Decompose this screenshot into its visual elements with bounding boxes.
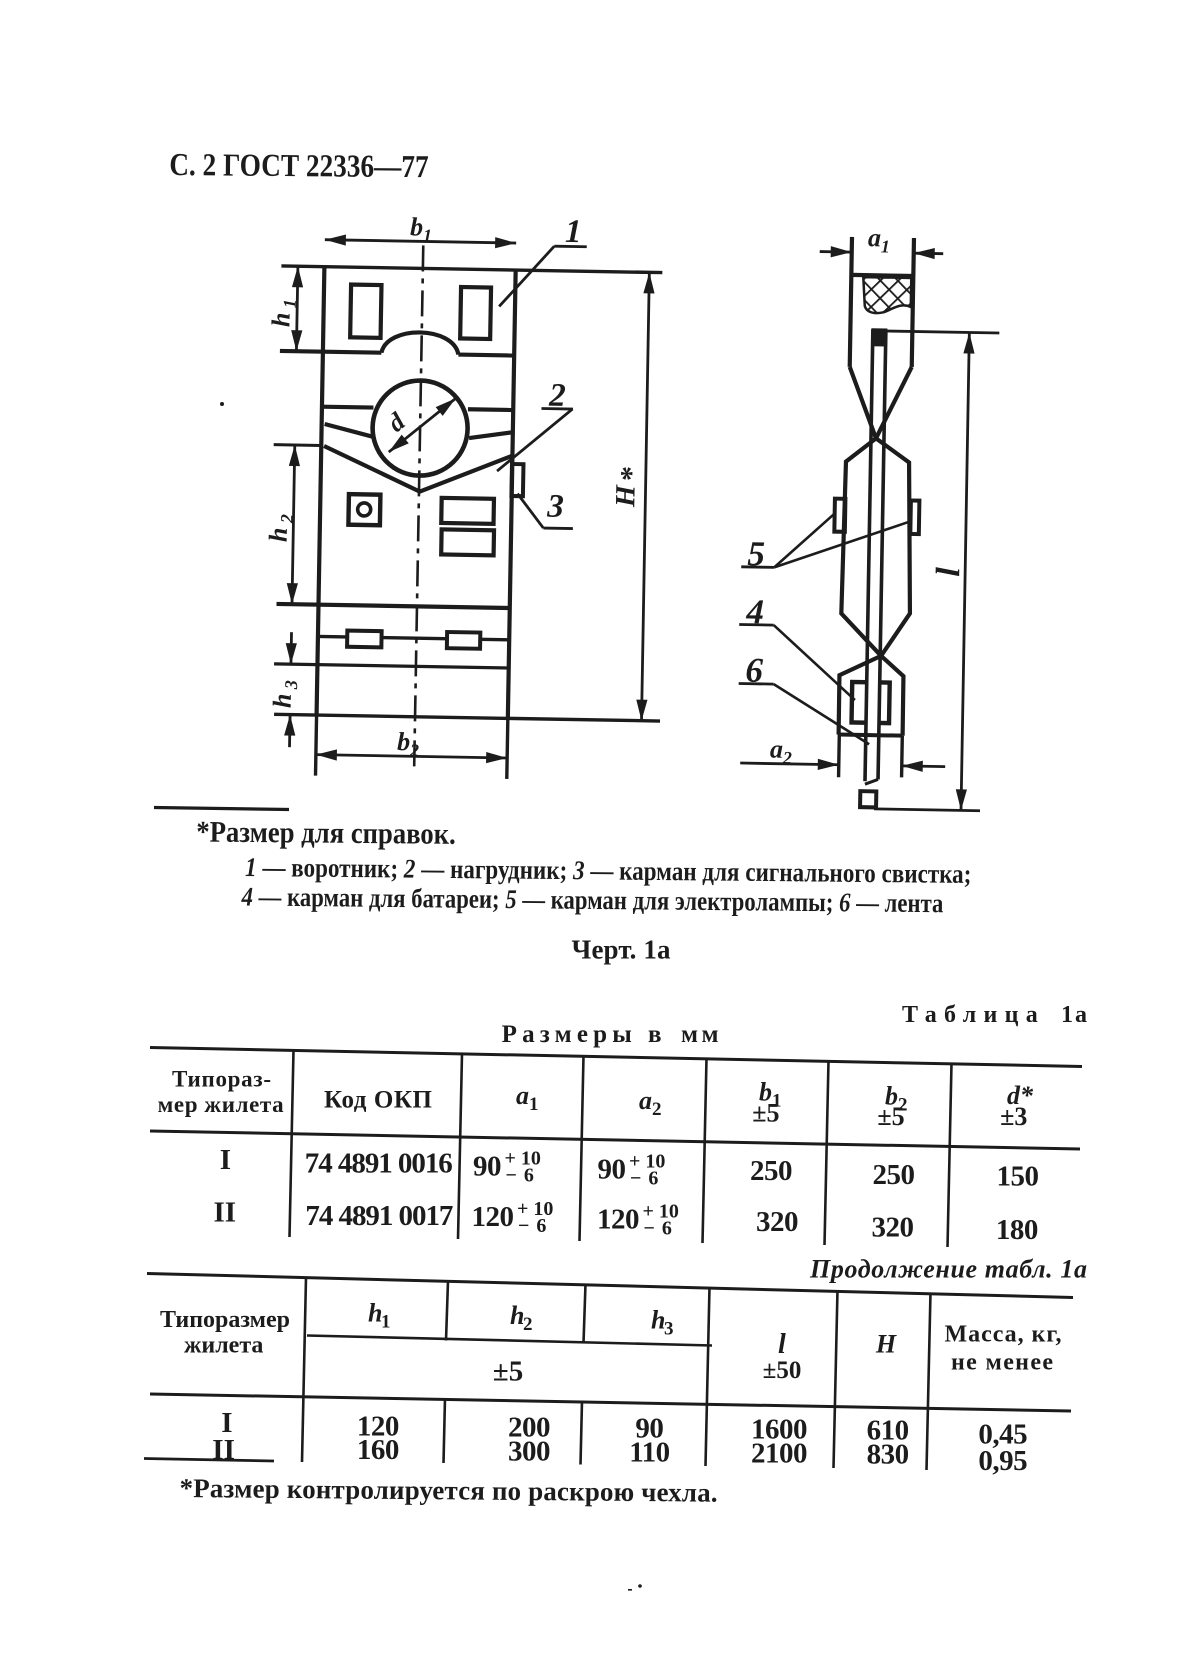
svg-text:*Размер контролируется по раск: *Размер контролируется по раскрою чехла.: [179, 1473, 717, 1508]
svg-text:±3: ±3: [1000, 1102, 1027, 1131]
svg-text:I: I: [220, 1144, 231, 1176]
svg-text:1: 1: [381, 1312, 391, 1333]
svg-text:в: в: [648, 1021, 662, 1048]
svg-text:2: 2: [782, 748, 792, 768]
svg-text:Таблица: Таблица: [902, 1002, 1045, 1028]
svg-text:Продолжение табл. 1а: Продолжение табл. 1а: [809, 1255, 1087, 1284]
svg-text:±5: ±5: [752, 1099, 779, 1128]
svg-text:a: a: [639, 1086, 652, 1115]
svg-text:300: 300: [508, 1436, 550, 1468]
svg-text:2100: 2100: [751, 1438, 807, 1470]
svg-text:H: H: [610, 484, 641, 509]
svg-text:90: 90: [473, 1151, 501, 1183]
svg-text:250: 250: [873, 1159, 915, 1191]
svg-text:110: 110: [629, 1437, 669, 1469]
svg-text:С. 2 ГОСТ 22336—77: С. 2 ГОСТ 22336—77: [169, 148, 429, 185]
svg-text:3: 3: [546, 489, 564, 525]
svg-text:b: b: [410, 212, 424, 241]
svg-text:h: h: [264, 527, 293, 542]
svg-text:h: h: [268, 693, 297, 708]
svg-text:h: h: [266, 312, 295, 327]
svg-text:мер жилета: мер жилета: [158, 1092, 285, 1117]
svg-text:160: 160: [357, 1434, 399, 1466]
svg-text:a: a: [516, 1081, 529, 1110]
svg-text:− 6: − 6: [644, 1218, 673, 1240]
svg-text:320: 320: [872, 1211, 914, 1243]
svg-text:− 6: − 6: [506, 1165, 535, 1187]
svg-text:l: l: [930, 566, 967, 577]
svg-text:120: 120: [472, 1201, 514, 1233]
svg-text:1: 1: [881, 236, 890, 256]
svg-text:Размеры: Размеры: [502, 1021, 637, 1048]
svg-text:*Размер для справок.: *Размер для справок.: [196, 816, 456, 851]
svg-text:±50: ±50: [763, 1357, 802, 1384]
svg-text:250: 250: [750, 1155, 792, 1187]
svg-text:II: II: [214, 1197, 237, 1229]
svg-text:1: 1: [529, 1094, 539, 1115]
svg-text:0,95: 0,95: [978, 1445, 1027, 1477]
svg-text:180: 180: [996, 1214, 1038, 1246]
svg-text:a: a: [868, 223, 882, 252]
svg-text:1: 1: [423, 225, 432, 245]
svg-text:Типоразмер: Типоразмер: [160, 1307, 290, 1333]
svg-text:3: 3: [281, 680, 301, 690]
svg-text:a: a: [770, 735, 784, 764]
svg-text:±5: ±5: [877, 1102, 904, 1131]
svg-text:− 6: − 6: [630, 1168, 659, 1190]
svg-text:2: 2: [652, 1099, 662, 1120]
svg-text:1: 1: [565, 214, 582, 250]
svg-text:II: II: [212, 1434, 235, 1466]
svg-text:мм: мм: [681, 1021, 722, 1048]
svg-text:l: l: [778, 1329, 786, 1360]
svg-text:2: 2: [523, 1314, 533, 1335]
svg-text:830: 830: [867, 1439, 909, 1471]
svg-text:150: 150: [997, 1160, 1039, 1192]
svg-text:b: b: [397, 727, 411, 756]
svg-text:90: 90: [598, 1154, 626, 1186]
svg-text:− 6: − 6: [518, 1215, 547, 1237]
svg-text:2: 2: [277, 514, 297, 524]
svg-text:жилета: жилета: [184, 1333, 263, 1359]
svg-text:320: 320: [756, 1206, 798, 1238]
svg-text:74 4891 0017: 74 4891 0017: [305, 1200, 453, 1232]
svg-text:1: 1: [280, 299, 300, 308]
svg-text:Масса, кг,: Масса, кг,: [945, 1321, 1062, 1347]
svg-text:1а: 1а: [1061, 1002, 1089, 1028]
svg-text:2: 2: [409, 740, 419, 760]
svg-text:74 4891 0016: 74 4891 0016: [305, 1147, 453, 1179]
svg-text:*: *: [615, 466, 648, 482]
svg-text:±5: ±5: [493, 1356, 523, 1388]
svg-text:Код ОКП: Код ОКП: [324, 1087, 432, 1114]
svg-text:120: 120: [597, 1204, 639, 1236]
svg-text:Черт. 1а: Черт. 1а: [572, 935, 672, 965]
svg-text:Типораз-: Типораз-: [172, 1067, 271, 1092]
svg-text:3: 3: [664, 1319, 674, 1340]
svg-text:H: H: [875, 1329, 897, 1358]
